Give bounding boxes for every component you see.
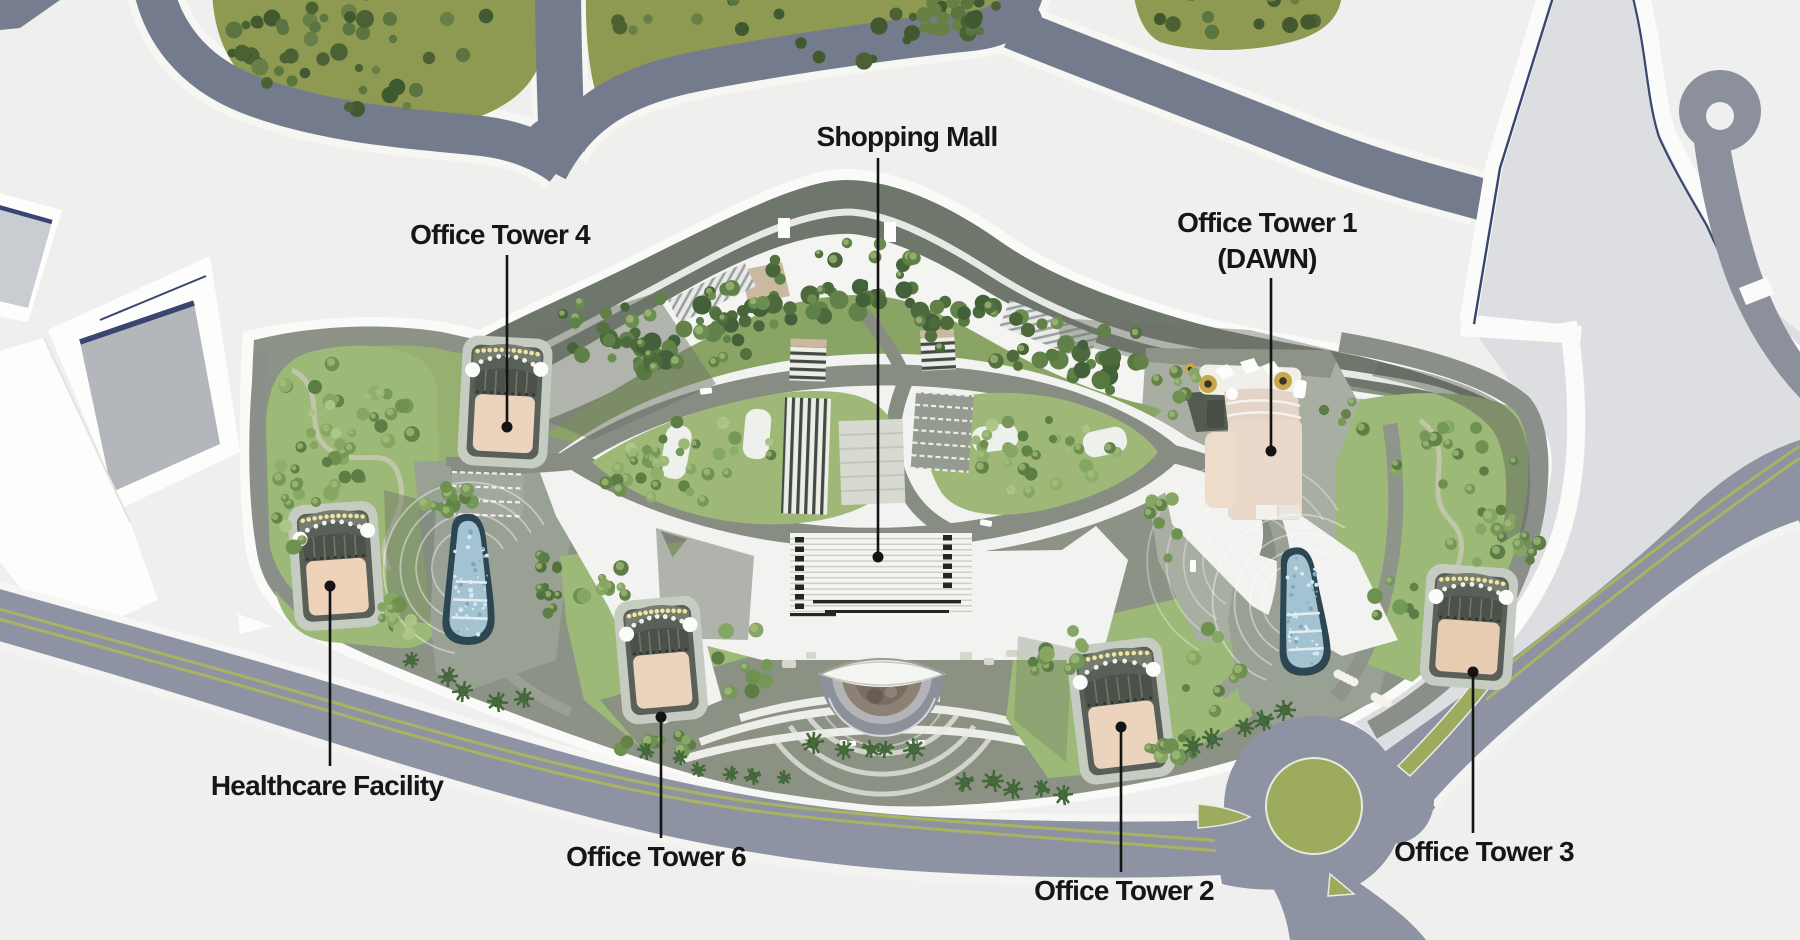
svg-text:Office Tower 4: Office Tower 4 (410, 219, 591, 250)
svg-text:Healthcare Facility: Healthcare Facility (211, 770, 444, 801)
svg-text:Shopping Mall: Shopping Mall (817, 121, 998, 152)
svg-text:(DAWN): (DAWN) (1217, 243, 1316, 274)
svg-text:Office Tower 1: Office Tower 1 (1177, 207, 1357, 238)
svg-text:Office Tower 6: Office Tower 6 (566, 841, 746, 872)
svg-text:Office Tower 3: Office Tower 3 (1394, 836, 1574, 867)
svg-text:Office Tower 2: Office Tower 2 (1034, 875, 1214, 906)
